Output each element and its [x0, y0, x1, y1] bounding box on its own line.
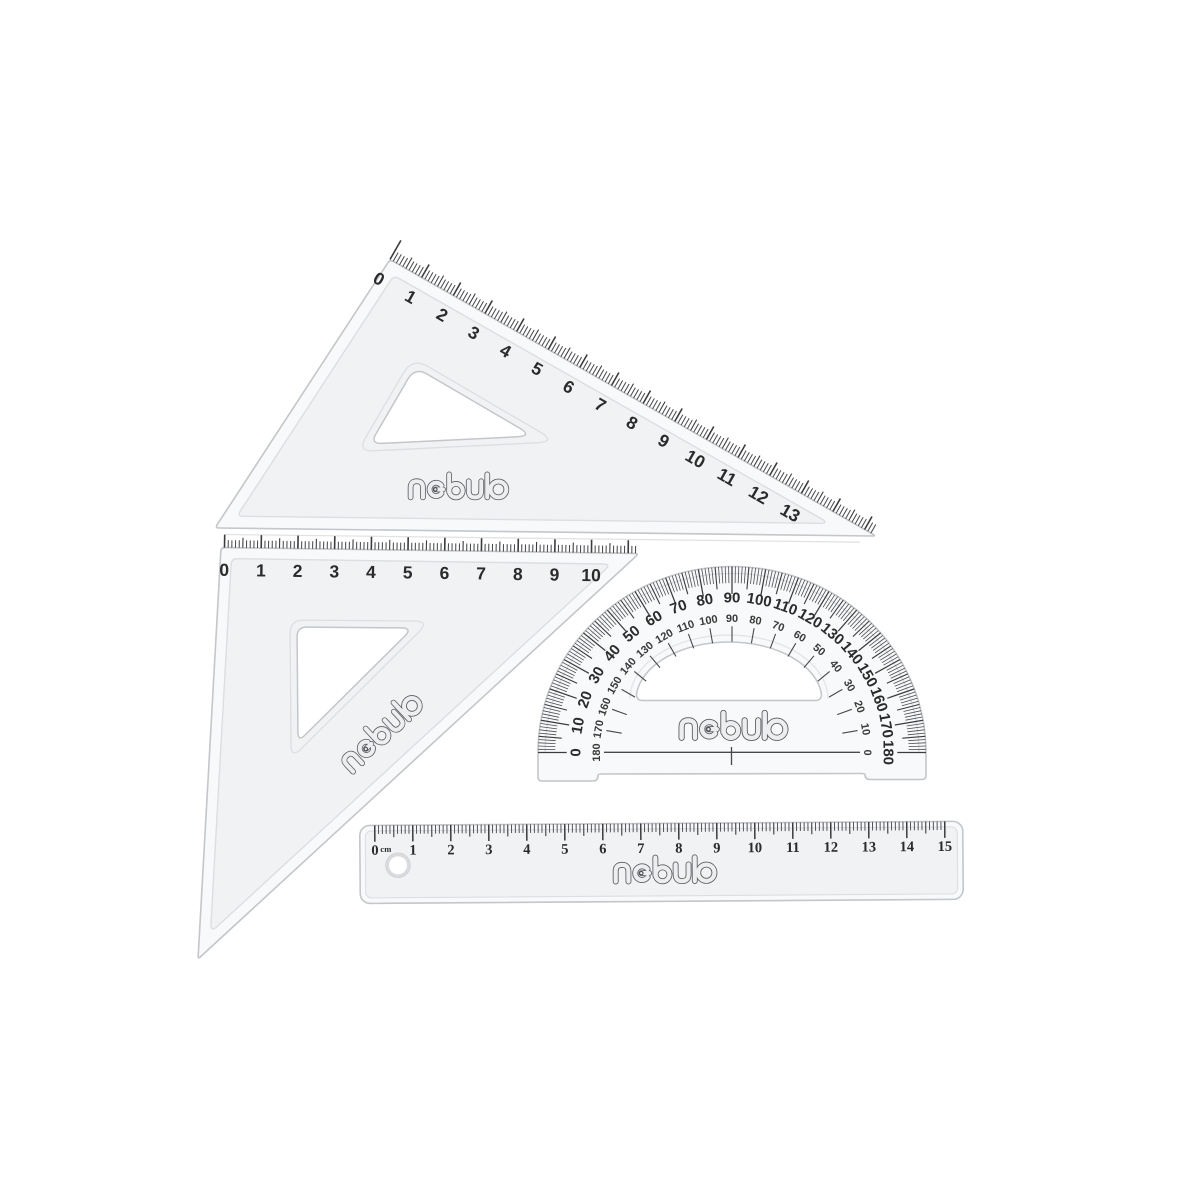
svg-text:90: 90 [726, 613, 738, 625]
svg-text:14: 14 [900, 839, 915, 855]
svg-text:90: 90 [724, 590, 741, 607]
svg-text:9: 9 [549, 565, 559, 585]
svg-text:0: 0 [861, 749, 873, 755]
svg-text:3: 3 [485, 842, 492, 858]
svg-text:8: 8 [675, 841, 682, 857]
svg-text:10: 10 [568, 716, 588, 735]
svg-text:9: 9 [713, 840, 720, 856]
svg-text:10: 10 [748, 840, 763, 856]
svg-text:0: 0 [371, 843, 378, 859]
svg-text:2: 2 [293, 561, 303, 581]
svg-text:1: 1 [409, 843, 416, 859]
svg-text:11: 11 [786, 840, 800, 856]
svg-text:80: 80 [748, 614, 762, 628]
svg-text:13: 13 [862, 839, 877, 855]
svg-text:7: 7 [476, 563, 486, 583]
svg-text:5: 5 [561, 842, 568, 858]
svg-text:10: 10 [581, 565, 601, 585]
svg-text:80: 80 [695, 590, 714, 610]
svg-text:7: 7 [637, 841, 644, 857]
svg-text:180: 180 [591, 743, 603, 761]
svg-text:0: 0 [219, 560, 229, 580]
svg-text:4: 4 [366, 562, 376, 582]
svg-text:180: 180 [880, 740, 897, 765]
svg-text:6: 6 [439, 563, 449, 583]
svg-text:6: 6 [599, 841, 606, 857]
svg-text:0: 0 [567, 748, 584, 756]
svg-text:10: 10 [858, 722, 872, 736]
svg-text:2: 2 [447, 842, 454, 858]
svg-text:5: 5 [403, 562, 413, 582]
svg-text:3: 3 [329, 561, 339, 581]
svg-text:1: 1 [256, 560, 266, 580]
svg-text:15: 15 [938, 839, 953, 855]
svg-text:8: 8 [513, 564, 523, 584]
svg-text:12: 12 [824, 840, 839, 856]
svg-text:4: 4 [523, 842, 530, 858]
svg-text:cm: cm [380, 844, 391, 854]
